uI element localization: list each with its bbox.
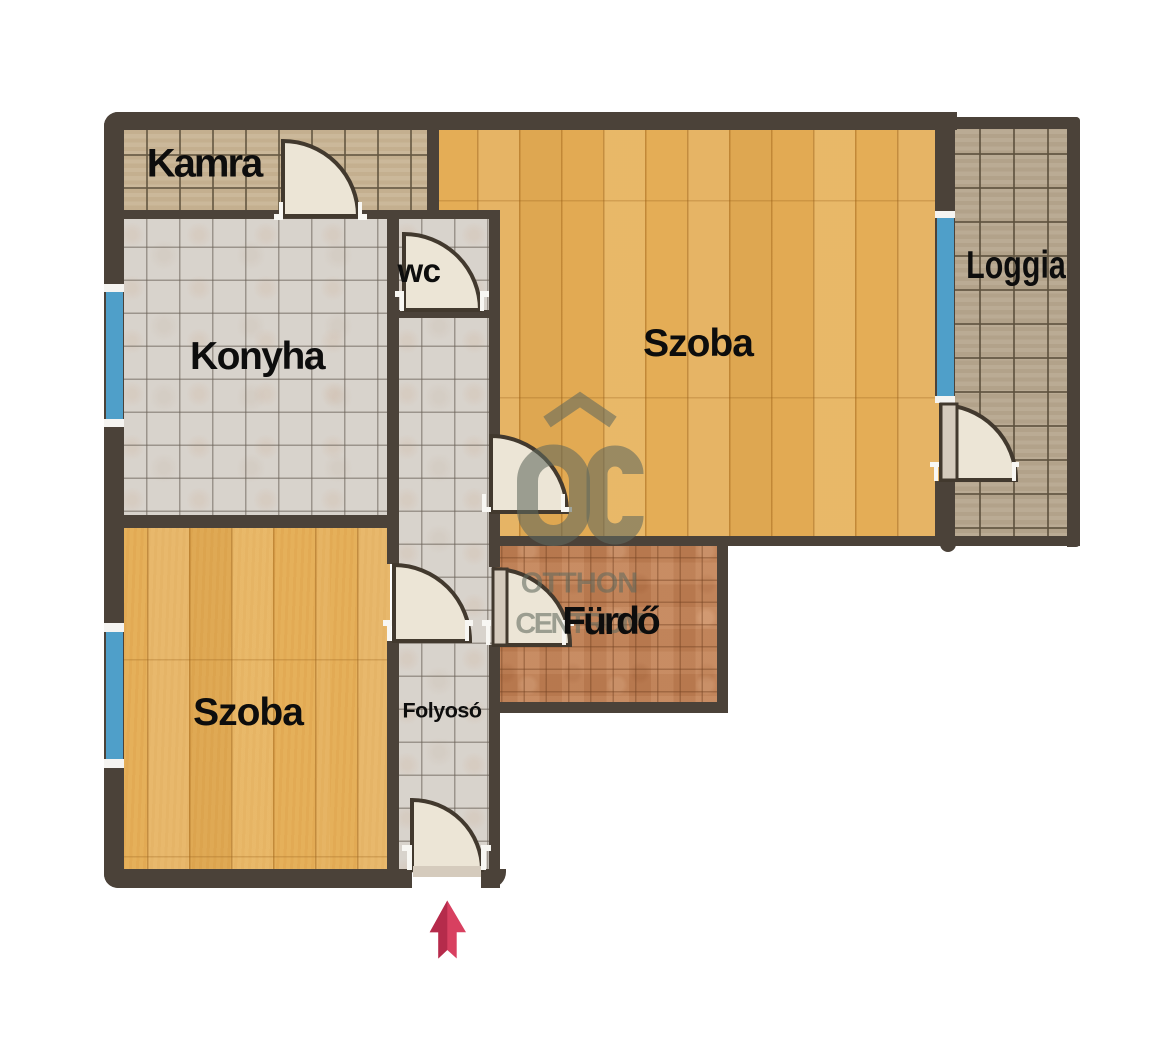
svg-text:OTTHON: OTTHON [521,568,637,600]
